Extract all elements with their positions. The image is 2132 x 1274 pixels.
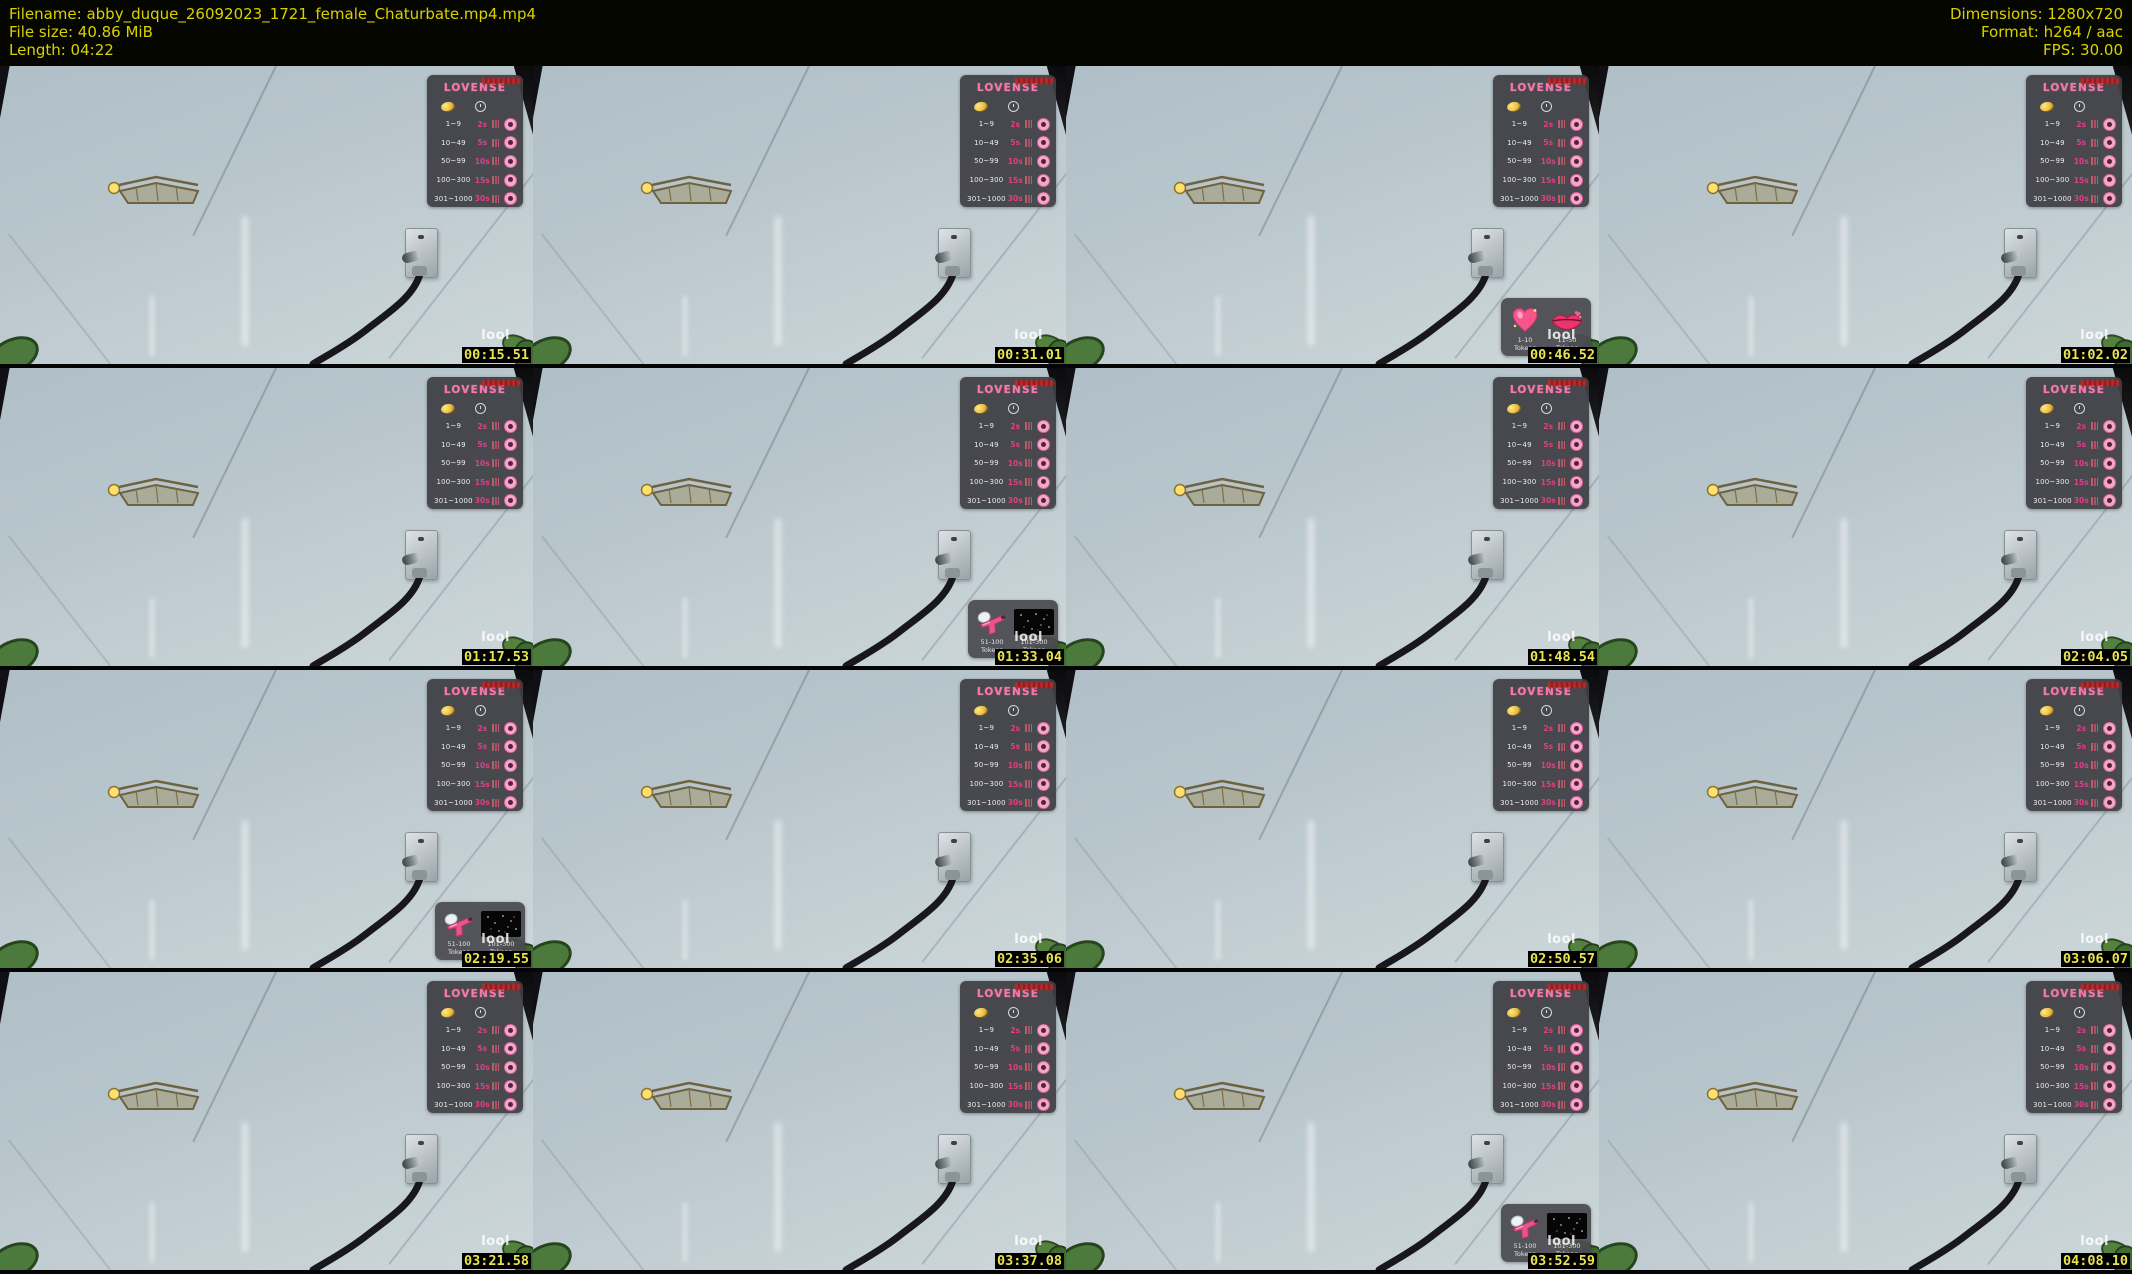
vibration-icon bbox=[1557, 1045, 1566, 1053]
video-thumbnail: LOVENSE 1~9 2s 10~49 5s 50~99 10s 100~30… bbox=[533, 972, 1066, 1274]
vibration-icon bbox=[2090, 120, 2099, 128]
vibration-icon bbox=[2090, 176, 2099, 184]
tip-menu-row: 50~99 10s bbox=[427, 1058, 523, 1077]
duration-value: 15s bbox=[1540, 176, 1557, 185]
duration-value: 30s bbox=[1007, 798, 1024, 807]
tip-menu-row: 301~1000 30s bbox=[2026, 189, 2122, 208]
timestamp-badge: 03:52.59 bbox=[1528, 1253, 1597, 1269]
tip-menu-row: 50~99 10s bbox=[960, 152, 1056, 171]
token-range-label: 50~99 bbox=[2032, 157, 2073, 165]
tip-menu-row: 1~9 2s bbox=[427, 719, 523, 738]
tip-menu-row: 10~49 5s bbox=[1493, 1040, 1589, 1059]
tip-menu-row: 10~49 5s bbox=[1493, 134, 1589, 153]
toy-icon bbox=[1037, 796, 1050, 809]
token-range-label: 100~300 bbox=[433, 780, 474, 788]
vibration-icon bbox=[1024, 1101, 1033, 1109]
toy-icon bbox=[504, 192, 517, 205]
vibration-icon bbox=[491, 1101, 500, 1109]
panel-column-icons bbox=[441, 101, 523, 112]
toy-icon bbox=[1037, 494, 1050, 507]
vibration-icon bbox=[1024, 120, 1033, 128]
tip-menu-row: 50~99 10s bbox=[2026, 152, 2122, 171]
toy-icon bbox=[504, 1080, 517, 1093]
token-range-label: 50~99 bbox=[433, 157, 474, 165]
token-range-label: 10~49 bbox=[1499, 1045, 1540, 1053]
token-range-label: 50~99 bbox=[966, 459, 1007, 467]
tip-menu-row: 1~9 2s bbox=[2026, 417, 2122, 436]
vibration-icon bbox=[1557, 1082, 1566, 1090]
toy-icon bbox=[1037, 759, 1050, 772]
tip-menu-row: 301~1000 30s bbox=[960, 491, 1056, 510]
clock-icon bbox=[1008, 1007, 1019, 1018]
token-range-label: 10~49 bbox=[1499, 139, 1540, 147]
duration-value: 30s bbox=[2073, 496, 2090, 505]
video-thumbnail: LOVENSE 1~9 2s 10~49 5s 50~99 10s 100~30… bbox=[1066, 66, 1599, 368]
timestamp-badge: 02:50.57 bbox=[1528, 951, 1597, 967]
panel-corner-badge bbox=[1015, 984, 1053, 990]
duration-value: 10s bbox=[474, 459, 491, 468]
duration-value: 2s bbox=[1007, 724, 1024, 733]
vibration-icon bbox=[491, 441, 500, 449]
duration-value: 10s bbox=[2073, 761, 2090, 770]
watermark: lool bbox=[1547, 1234, 1576, 1249]
token-range-label: 301~1000 bbox=[2032, 497, 2073, 505]
duration-value: 30s bbox=[1540, 1100, 1557, 1109]
tip-menu-row: 50~99 10s bbox=[1493, 454, 1589, 473]
panel-column-icons bbox=[1507, 101, 1589, 112]
vibration-icon bbox=[2090, 422, 2099, 430]
token-range-label: 1~9 bbox=[966, 120, 1007, 128]
toy-icon bbox=[504, 494, 517, 507]
panel-corner-badge bbox=[482, 380, 520, 386]
token-range-label: 1~9 bbox=[433, 422, 474, 430]
tip-menu-row: 10~49 5s bbox=[1493, 738, 1589, 757]
panel-column-icons bbox=[1507, 705, 1589, 716]
panel-column-icons bbox=[2040, 1007, 2122, 1018]
vibration-icon bbox=[1024, 743, 1033, 751]
timestamp-badge: 00:46.52 bbox=[1528, 347, 1597, 363]
toy-icon bbox=[2103, 420, 2116, 433]
token-range-label: 301~1000 bbox=[2032, 1101, 2073, 1109]
coin-icon bbox=[440, 403, 455, 415]
dimensions-line: Dimensions: 1280x720 bbox=[1950, 5, 2123, 23]
tip-menu-row: 50~99 10s bbox=[960, 756, 1056, 775]
duration-value: 30s bbox=[474, 798, 491, 807]
toy-icon bbox=[504, 778, 517, 791]
tip-menu-row: 301~1000 30s bbox=[1493, 793, 1589, 812]
toy-icon bbox=[504, 136, 517, 149]
token-range-label: 301~1000 bbox=[966, 195, 1007, 203]
token-range-label: 100~300 bbox=[1499, 176, 1540, 184]
duration-value: 15s bbox=[2073, 176, 2090, 185]
duration-value: 15s bbox=[1007, 1082, 1024, 1091]
toy-icon bbox=[2103, 438, 2116, 451]
lovense-tip-menu-panel: LOVENSE 1~9 2s 10~49 5s 50~99 10s 100~30… bbox=[427, 75, 523, 207]
vibration-icon bbox=[1557, 422, 1566, 430]
token-range-label: 50~99 bbox=[966, 1063, 1007, 1071]
token-range-label: 50~99 bbox=[966, 157, 1007, 165]
coin-icon bbox=[973, 1007, 988, 1019]
duration-value: 10s bbox=[474, 761, 491, 770]
token-range-label: 301~1000 bbox=[433, 799, 474, 807]
clock-icon bbox=[1008, 403, 1019, 414]
vibration-icon bbox=[1024, 1045, 1033, 1053]
lovense-tip-menu-panel: LOVENSE 1~9 2s 10~49 5s 50~99 10s 100~30… bbox=[1493, 377, 1589, 509]
token-range-label: 100~300 bbox=[966, 1082, 1007, 1090]
duration-value: 30s bbox=[1540, 194, 1557, 203]
toy-icon bbox=[1037, 476, 1050, 489]
toy-icon bbox=[1037, 1098, 1050, 1111]
token-range-label: 1~9 bbox=[2032, 1026, 2073, 1034]
duration-value: 10s bbox=[2073, 459, 2090, 468]
tip-menu-row: 100~300 15s bbox=[1493, 1077, 1589, 1096]
token-range-label: 301~1000 bbox=[1499, 1101, 1540, 1109]
tip-menu-rows: 1~9 2s 10~49 5s 50~99 10s 100~300 15s 30… bbox=[427, 417, 523, 510]
video-thumbnail: LOVENSE 1~9 2s 10~49 5s 50~99 10s 100~30… bbox=[1066, 972, 1599, 1274]
tip-menu-row: 10~49 5s bbox=[2026, 134, 2122, 153]
panel-corner-badge bbox=[1548, 78, 1586, 84]
clock-icon bbox=[1541, 101, 1552, 112]
timestamp-badge: 00:15.51 bbox=[462, 347, 531, 363]
vibration-icon bbox=[2090, 459, 2099, 467]
lovense-tip-menu-panel: LOVENSE 1~9 2s 10~49 5s 50~99 10s 100~30… bbox=[960, 679, 1056, 811]
duration-value: 15s bbox=[474, 780, 491, 789]
toy-icon bbox=[1037, 136, 1050, 149]
tip-menu-rows: 1~9 2s 10~49 5s 50~99 10s 100~300 15s 30… bbox=[960, 1021, 1056, 1114]
duration-value: 2s bbox=[474, 422, 491, 431]
filename-line: Filename: abby_duque_26092023_1721_femal… bbox=[9, 5, 536, 23]
tip-menu-row: 301~1000 30s bbox=[2026, 1095, 2122, 1114]
lovense-tip-menu-panel: LOVENSE 1~9 2s 10~49 5s 50~99 10s 100~30… bbox=[960, 75, 1056, 207]
vibration-icon bbox=[491, 1026, 500, 1034]
duration-value: 30s bbox=[1540, 798, 1557, 807]
toy-icon bbox=[2103, 118, 2116, 131]
token-range-label: 1~9 bbox=[433, 724, 474, 732]
tip-menu-row: 100~300 15s bbox=[427, 171, 523, 190]
toy-icon bbox=[2103, 740, 2116, 753]
tip-menu-row: 1~9 2s bbox=[960, 1021, 1056, 1040]
tip-menu-row: 10~49 5s bbox=[427, 738, 523, 757]
vibration-icon bbox=[1557, 497, 1566, 505]
duration-value: 2s bbox=[1007, 1026, 1024, 1035]
tip-menu-row: 100~300 15s bbox=[427, 1077, 523, 1096]
clock-icon bbox=[2074, 101, 2085, 112]
duration-value: 10s bbox=[1007, 459, 1024, 468]
toy-icon bbox=[2103, 1042, 2116, 1055]
tip-menu-row: 10~49 5s bbox=[960, 134, 1056, 153]
coin-icon bbox=[973, 101, 988, 113]
toy-icon bbox=[1037, 457, 1050, 470]
token-range-label: 301~1000 bbox=[1499, 195, 1540, 203]
vibration-icon bbox=[1557, 1101, 1566, 1109]
toy-icon bbox=[504, 118, 517, 131]
duration-value: 30s bbox=[474, 194, 491, 203]
duration-value: 5s bbox=[1007, 1044, 1024, 1053]
tip-menu-row: 100~300 15s bbox=[960, 1077, 1056, 1096]
lovense-tip-menu-panel: LOVENSE 1~9 2s 10~49 5s 50~99 10s 100~30… bbox=[1493, 75, 1589, 207]
timestamp-badge: 04:08.10 bbox=[2061, 1253, 2130, 1269]
token-range-label: 301~1000 bbox=[1499, 497, 1540, 505]
vibration-icon bbox=[2090, 1026, 2099, 1034]
token-range-label: 10~49 bbox=[966, 1045, 1007, 1053]
toy-icon bbox=[1570, 420, 1583, 433]
duration-value: 30s bbox=[2073, 194, 2090, 203]
vibration-icon bbox=[1024, 780, 1033, 788]
vibration-icon bbox=[1024, 195, 1033, 203]
tip-menu-rows: 1~9 2s 10~49 5s 50~99 10s 100~300 15s 30… bbox=[427, 115, 523, 208]
tip-menu-row: 1~9 2s bbox=[1493, 719, 1589, 738]
duration-value: 2s bbox=[1007, 120, 1024, 129]
watermark: lool bbox=[481, 932, 510, 947]
token-range-label: 10~49 bbox=[966, 139, 1007, 147]
toy-icon bbox=[1570, 796, 1583, 809]
duration-value: 5s bbox=[1540, 742, 1557, 751]
watermark: lool bbox=[2080, 1234, 2109, 1249]
toy-icon bbox=[2103, 722, 2116, 735]
timestamp-badge: 01:02.02 bbox=[2061, 347, 2130, 363]
toy-icon bbox=[1037, 420, 1050, 433]
panel-corner-badge bbox=[1015, 78, 1053, 84]
coin-icon bbox=[2039, 1007, 2054, 1019]
water-gun-icon bbox=[1509, 1209, 1541, 1242]
tip-menu-row: 301~1000 30s bbox=[427, 491, 523, 510]
panel-column-icons bbox=[441, 1007, 523, 1018]
vibration-icon bbox=[491, 422, 500, 430]
token-range-label: 100~300 bbox=[433, 1082, 474, 1090]
toy-icon bbox=[504, 174, 517, 187]
vibration-icon bbox=[491, 724, 500, 732]
tip-menu-row: 301~1000 30s bbox=[960, 189, 1056, 208]
duration-value: 5s bbox=[1007, 440, 1024, 449]
panel-corner-badge bbox=[482, 984, 520, 990]
lovense-tip-menu-panel: LOVENSE 1~9 2s 10~49 5s 50~99 10s 100~30… bbox=[2026, 75, 2122, 207]
coin-icon bbox=[2039, 403, 2054, 415]
panel-corner-badge bbox=[2081, 682, 2119, 688]
clock-icon bbox=[1008, 705, 1019, 716]
tip-menu-rows: 1~9 2s 10~49 5s 50~99 10s 100~300 15s 30… bbox=[960, 417, 1056, 510]
vibration-icon bbox=[1557, 157, 1566, 165]
toy-icon bbox=[1570, 1024, 1583, 1037]
duration-value: 10s bbox=[1540, 459, 1557, 468]
duration-value: 2s bbox=[2073, 1026, 2090, 1035]
token-range-label: 301~1000 bbox=[433, 195, 474, 203]
duration-value: 5s bbox=[474, 440, 491, 449]
panel-column-icons bbox=[2040, 705, 2122, 716]
timestamp-badge: 03:21.58 bbox=[462, 1253, 531, 1269]
toy-icon bbox=[1570, 1042, 1583, 1055]
tip-menu-row: 1~9 2s bbox=[960, 719, 1056, 738]
duration-value: 30s bbox=[2073, 798, 2090, 807]
tip-menu-row: 10~49 5s bbox=[2026, 436, 2122, 455]
duration-value: 2s bbox=[474, 724, 491, 733]
duration-value: 2s bbox=[1540, 422, 1557, 431]
panel-corner-badge bbox=[2081, 78, 2119, 84]
duration-value: 15s bbox=[474, 1082, 491, 1091]
token-range-label: 301~1000 bbox=[433, 497, 474, 505]
duration-value: 30s bbox=[1007, 194, 1024, 203]
tip-menu-rows: 1~9 2s 10~49 5s 50~99 10s 100~300 15s 30… bbox=[1493, 115, 1589, 208]
token-range-label: 100~300 bbox=[966, 176, 1007, 184]
toy-icon bbox=[1570, 476, 1583, 489]
tip-menu-row: 50~99 10s bbox=[427, 152, 523, 171]
timestamp-badge: 03:06.07 bbox=[2061, 951, 2130, 967]
panel-corner-badge bbox=[1015, 682, 1053, 688]
toy-icon bbox=[1037, 174, 1050, 187]
coin-icon bbox=[973, 403, 988, 415]
duration-value: 30s bbox=[474, 1100, 491, 1109]
token-range-label: 100~300 bbox=[1499, 1082, 1540, 1090]
token-range-label: 10~49 bbox=[433, 441, 474, 449]
tip-menu-row: 50~99 10s bbox=[2026, 756, 2122, 775]
token-range-label: 301~1000 bbox=[966, 1101, 1007, 1109]
token-range-label: 50~99 bbox=[433, 1063, 474, 1071]
token-range-label: 10~49 bbox=[1499, 441, 1540, 449]
token-range-label: 100~300 bbox=[1499, 478, 1540, 486]
filesize-line: File size: 40.86 MiB bbox=[9, 23, 536, 41]
duration-value: 15s bbox=[2073, 1082, 2090, 1091]
vibration-icon bbox=[1024, 497, 1033, 505]
tip-menu-rows: 1~9 2s 10~49 5s 50~99 10s 100~300 15s 30… bbox=[2026, 115, 2122, 208]
toy-icon bbox=[1037, 1042, 1050, 1055]
vibration-icon bbox=[491, 1045, 500, 1053]
tip-menu-row: 301~1000 30s bbox=[1493, 189, 1589, 208]
duration-value: 15s bbox=[2073, 478, 2090, 487]
duration-value: 10s bbox=[2073, 157, 2090, 166]
vibration-icon bbox=[1557, 1026, 1566, 1034]
coin-icon bbox=[973, 705, 988, 717]
duration-value: 5s bbox=[2073, 742, 2090, 751]
duration-value: 2s bbox=[474, 120, 491, 129]
toy-icon bbox=[1570, 740, 1583, 753]
tip-menu-row: 1~9 2s bbox=[1493, 115, 1589, 134]
token-range-label: 301~1000 bbox=[966, 799, 1007, 807]
vibration-icon bbox=[1024, 176, 1033, 184]
vibration-icon bbox=[1024, 1063, 1033, 1071]
clock-icon bbox=[1541, 1007, 1552, 1018]
tip-menu-row: 100~300 15s bbox=[960, 473, 1056, 492]
tip-menu-row: 50~99 10s bbox=[427, 756, 523, 775]
panel-corner-badge bbox=[1548, 682, 1586, 688]
toy-icon bbox=[2103, 494, 2116, 507]
panel-corner-badge bbox=[482, 78, 520, 84]
vibration-icon bbox=[491, 120, 500, 128]
metadata-header: Filename: abby_duque_26092023_1721_femal… bbox=[0, 0, 2132, 66]
toy-icon bbox=[2103, 1061, 2116, 1074]
panel-corner-badge bbox=[1548, 984, 1586, 990]
tip-menu-row: 100~300 15s bbox=[427, 775, 523, 794]
vibration-icon bbox=[491, 195, 500, 203]
clock-icon bbox=[475, 705, 486, 716]
toy-icon bbox=[1570, 174, 1583, 187]
tip-menu-row: 1~9 2s bbox=[427, 1021, 523, 1040]
video-thumbnail: LOVENSE 1~9 2s 10~49 5s 50~99 10s 100~30… bbox=[1599, 368, 2132, 670]
toy-icon bbox=[504, 438, 517, 451]
watermark: lool bbox=[1547, 932, 1576, 947]
panel-column-icons bbox=[974, 705, 1056, 716]
token-range-label: 100~300 bbox=[433, 478, 474, 486]
tip-menu-row: 100~300 15s bbox=[960, 775, 1056, 794]
token-range-label: 50~99 bbox=[1499, 459, 1540, 467]
vibration-icon bbox=[491, 478, 500, 486]
vibration-icon bbox=[1024, 139, 1033, 147]
clock-icon bbox=[475, 101, 486, 112]
toy-icon bbox=[1037, 1061, 1050, 1074]
tip-menu-row: 100~300 15s bbox=[2026, 1077, 2122, 1096]
vibration-icon bbox=[1557, 176, 1566, 184]
tip-menu-row: 50~99 10s bbox=[2026, 454, 2122, 473]
token-range-label: 10~49 bbox=[2032, 441, 2073, 449]
tip-menu-row: 301~1000 30s bbox=[2026, 491, 2122, 510]
toy-icon bbox=[1037, 1024, 1050, 1037]
panel-corner-badge bbox=[2081, 984, 2119, 990]
tip-menu-row: 10~49 5s bbox=[427, 1040, 523, 1059]
duration-value: 2s bbox=[474, 1026, 491, 1035]
duration-value: 15s bbox=[1540, 1082, 1557, 1091]
token-range-label: 100~300 bbox=[2032, 1082, 2073, 1090]
duration-value: 30s bbox=[1540, 496, 1557, 505]
clock-icon bbox=[475, 1007, 486, 1018]
vibration-icon bbox=[491, 780, 500, 788]
vibration-icon bbox=[2090, 441, 2099, 449]
watermark: lool bbox=[481, 630, 510, 645]
duration-value: 2s bbox=[1007, 422, 1024, 431]
token-range-label: 50~99 bbox=[966, 761, 1007, 769]
tip-menu-row: 50~99 10s bbox=[2026, 1058, 2122, 1077]
duration-value: 15s bbox=[1007, 176, 1024, 185]
duration-value: 15s bbox=[474, 176, 491, 185]
duration-value: 5s bbox=[2073, 440, 2090, 449]
duration-value: 10s bbox=[1540, 761, 1557, 770]
fps-line: FPS: 30.00 bbox=[1950, 41, 2123, 59]
timestamp-badge: 02:19.55 bbox=[462, 951, 531, 967]
duration-value: 5s bbox=[1007, 138, 1024, 147]
tip-menu-rows: 1~9 2s 10~49 5s 50~99 10s 100~300 15s 30… bbox=[427, 719, 523, 812]
vibration-icon bbox=[1557, 799, 1566, 807]
toy-icon bbox=[504, 476, 517, 489]
vibration-icon bbox=[2090, 780, 2099, 788]
token-range-label: 10~49 bbox=[433, 139, 474, 147]
vibration-icon bbox=[491, 743, 500, 751]
duration-value: 10s bbox=[1540, 157, 1557, 166]
lovense-tip-menu-panel: LOVENSE 1~9 2s 10~49 5s 50~99 10s 100~30… bbox=[1493, 679, 1589, 811]
toy-icon bbox=[1570, 1061, 1583, 1074]
duration-value: 10s bbox=[474, 157, 491, 166]
token-range-label: 10~49 bbox=[2032, 139, 2073, 147]
tip-menu-row: 301~1000 30s bbox=[427, 189, 523, 208]
token-range-label: 50~99 bbox=[433, 459, 474, 467]
duration-value: 5s bbox=[2073, 1044, 2090, 1053]
watermark: lool bbox=[1014, 630, 1043, 645]
gift-item: 51-100 Tokens bbox=[440, 907, 478, 957]
panel-column-icons bbox=[974, 101, 1056, 112]
coin-icon bbox=[440, 101, 455, 113]
tip-menu-row: 10~49 5s bbox=[960, 436, 1056, 455]
clock-icon bbox=[475, 403, 486, 414]
token-range-label: 1~9 bbox=[1499, 1026, 1540, 1034]
panel-column-icons bbox=[1507, 403, 1589, 414]
toy-icon bbox=[504, 457, 517, 470]
toy-icon bbox=[504, 740, 517, 753]
token-range-label: 1~9 bbox=[1499, 422, 1540, 430]
duration-value: 5s bbox=[1540, 440, 1557, 449]
toy-icon bbox=[504, 1024, 517, 1037]
panel-column-icons bbox=[441, 403, 523, 414]
duration-value: 15s bbox=[474, 478, 491, 487]
token-range-label: 10~49 bbox=[2032, 1045, 2073, 1053]
lovense-tip-menu-panel: LOVENSE 1~9 2s 10~49 5s 50~99 10s 100~30… bbox=[2026, 981, 2122, 1113]
format-line: Format: h264 / aac bbox=[1950, 23, 2123, 41]
toy-icon bbox=[1037, 722, 1050, 735]
